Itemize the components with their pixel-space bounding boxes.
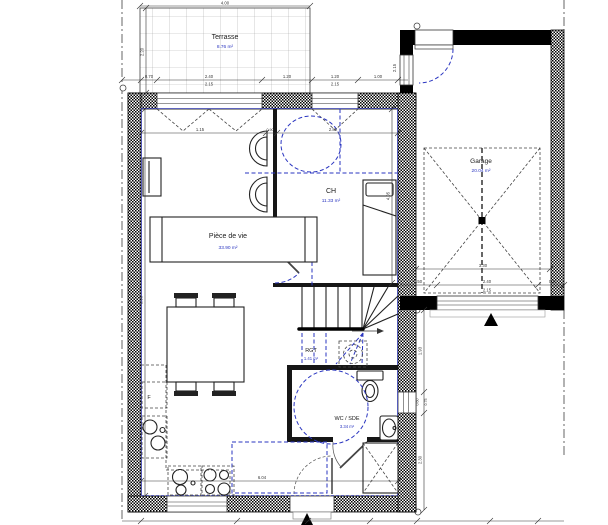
window-kitchen <box>167 496 227 512</box>
chair <box>212 293 236 298</box>
armchair <box>250 131 267 166</box>
floor-plan-drawing: Terrasse 8.76 m² <box>0 0 608 525</box>
dim-garage-door-h: 2.15 <box>483 288 492 293</box>
dining-table <box>167 293 244 396</box>
living-label: Pièce de vie <box>209 233 247 240</box>
dim-living-b: 0.90 <box>267 128 274 132</box>
dim-terrace-depth: 2.20 <box>140 47 145 56</box>
living-area: 33.90 m² <box>219 245 238 251</box>
toilet <box>357 371 383 402</box>
bedroom-label: CH <box>326 188 336 195</box>
dim-garage-a: 0.50 <box>414 279 423 284</box>
garage-main-door <box>430 296 545 317</box>
storage-label: RGT <box>305 348 317 354</box>
dim-window2-w: 1.20 <box>331 74 340 79</box>
garage-ped-door-leaf <box>415 45 453 49</box>
garage-area: 20.04 m² <box>472 168 491 174</box>
dim-window1-w: 2.40 <box>205 74 214 79</box>
dim-garage-b: 0.40 <box>549 279 558 284</box>
chair <box>212 391 236 396</box>
window-bedroom <box>312 93 358 130</box>
dim-ch-depth: 4.05 <box>386 191 391 200</box>
kitchen: F <box>141 365 234 496</box>
garage-label: Garage <box>470 158 492 165</box>
fridge: F <box>142 382 167 408</box>
dim-ch-width: 2.82 <box>329 127 338 132</box>
armchair <box>250 177 268 212</box>
garage-side-window <box>400 55 413 85</box>
entrance-step <box>293 512 331 519</box>
dim-right-window-f: 0.75 <box>424 399 428 406</box>
window-living <box>157 93 262 131</box>
dim-front-b: 1.20 <box>283 74 292 79</box>
dim-garage-width: 3.30 <box>479 263 488 268</box>
bedroom-south-wall <box>273 283 398 287</box>
stair-direction-arrow <box>377 328 384 334</box>
dim-terrace-width: 4.00 <box>221 1 230 6</box>
survey-marker <box>120 85 126 91</box>
garage-apron <box>430 310 545 317</box>
storage-area: 1.41 m² <box>304 356 319 361</box>
fridge-label: F <box>147 395 151 401</box>
kitchen-counter <box>141 365 230 496</box>
survey-marker <box>414 23 420 29</box>
wc-label: WC / SDE <box>334 416 359 422</box>
accessibility-circle <box>294 370 368 444</box>
dim-garage-side: 2.15 <box>392 63 397 72</box>
bed <box>363 180 396 275</box>
living-room: Pièce de vie 33.90 m² <box>143 131 317 396</box>
upper-floor-projection <box>232 442 327 493</box>
dim-window1-h: 2.15 <box>205 82 214 87</box>
floor-plan: Terrasse 8.76 m² <box>0 0 608 525</box>
radiator <box>143 158 161 196</box>
window-wc <box>398 392 416 413</box>
dim-front-a: 0.70 <box>145 74 154 79</box>
dim-living-a: 1.15 <box>196 127 205 132</box>
kitchen-sink-left <box>142 416 167 458</box>
wc-north-wall <box>287 365 398 370</box>
wc-west-wall <box>287 365 292 442</box>
roof-window-projection <box>281 116 341 172</box>
dim-garage-door-w: 2.40 <box>483 279 492 284</box>
bedroom-area: 11.33 m² <box>322 198 341 204</box>
washbasin <box>380 416 398 440</box>
dim-right-window: 0.60 <box>416 399 420 406</box>
chair <box>174 293 198 298</box>
stairs: RGT 1.41 m² <box>299 287 398 367</box>
garage-ped-door <box>415 30 453 83</box>
dim-depth-total: 8.96 <box>139 295 144 304</box>
chair <box>174 391 198 396</box>
dim-right-a: 1.93 <box>418 346 423 355</box>
closet <box>363 443 398 493</box>
terrace-area: 8.76 m² <box>217 44 234 50</box>
terrace-label: Terrasse <box>212 34 239 41</box>
garage-east-wall <box>551 30 564 310</box>
wc-door <box>333 442 367 468</box>
dim-window2-h: 2.15 <box>331 82 340 87</box>
dim-width-total: 6.04 <box>258 475 267 480</box>
dim-front-c: 1.00 <box>374 74 383 79</box>
dim-right-b: 2.30 <box>418 455 423 464</box>
wc-area: 3.34 m² <box>340 424 355 429</box>
